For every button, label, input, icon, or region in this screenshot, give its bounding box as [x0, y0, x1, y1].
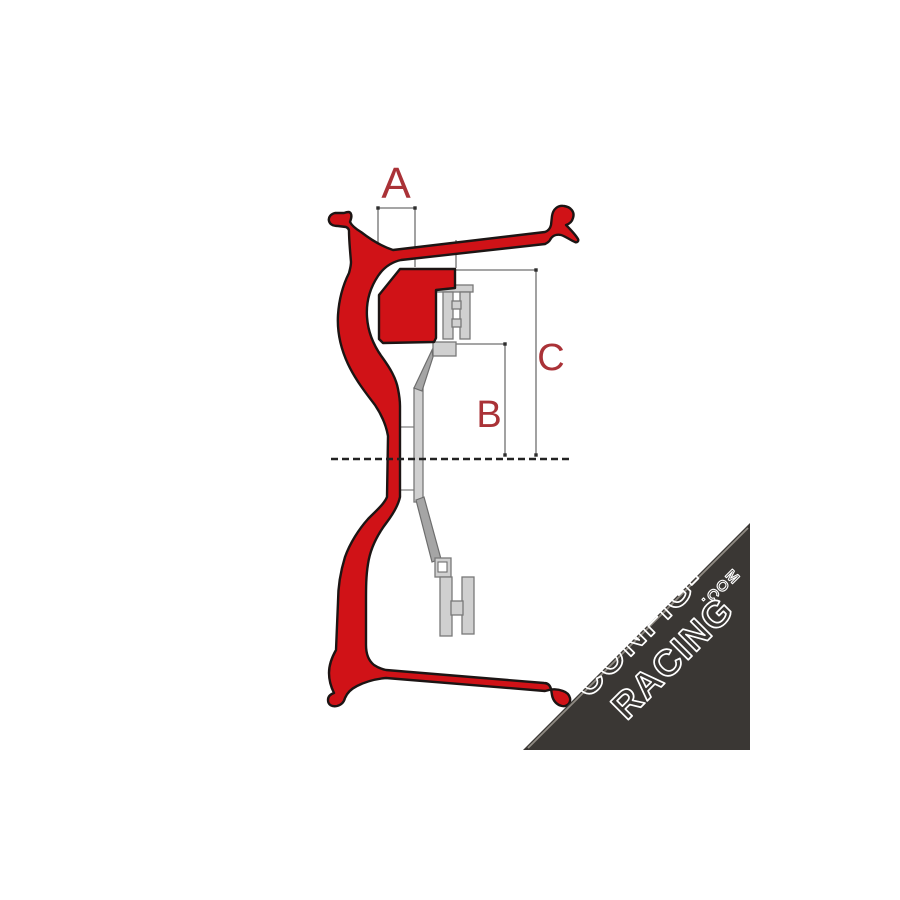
- wheel-stud-lower-left-bar: [440, 577, 452, 636]
- wheel-stud-lower-right-bar: [462, 577, 474, 634]
- wheel-stud-upper-rung-2: [452, 319, 461, 327]
- wheel-stud-upper-right-bar: [460, 292, 470, 339]
- hub-step-block-lower-inner: [438, 562, 447, 572]
- dim-a-marker-right: [413, 206, 416, 209]
- wheel-stud-lower-rung: [451, 601, 463, 615]
- dimension-label-c: C: [537, 337, 564, 379]
- dim-b-marker-top: [503, 342, 506, 345]
- hub-arm-upper: [414, 350, 433, 391]
- dimension-label-b: B: [476, 394, 501, 436]
- wheel-offset-diagram: A B C CONFIG- RACING .COM: [0, 0, 900, 900]
- wheel-stud-upper-rung-1: [452, 301, 461, 309]
- dim-a-marker-left: [376, 206, 379, 209]
- hub-mounting-face: [414, 388, 423, 502]
- diagram-canvas: A B C CONFIG- RACING .COM: [0, 0, 900, 900]
- rim-cross-section: [328, 206, 578, 706]
- hub-arm-lower: [416, 497, 441, 562]
- wheel-stud-upper-left-bar: [443, 292, 453, 339]
- watermark: CONFIG- RACING .COM: [523, 523, 763, 750]
- hub-step-block-upper: [433, 342, 456, 356]
- dimension-label-a: A: [381, 159, 411, 208]
- dim-c-marker-bottom: [534, 453, 537, 456]
- dim-b-marker-bottom: [503, 453, 506, 456]
- dim-c-marker-top: [534, 268, 537, 271]
